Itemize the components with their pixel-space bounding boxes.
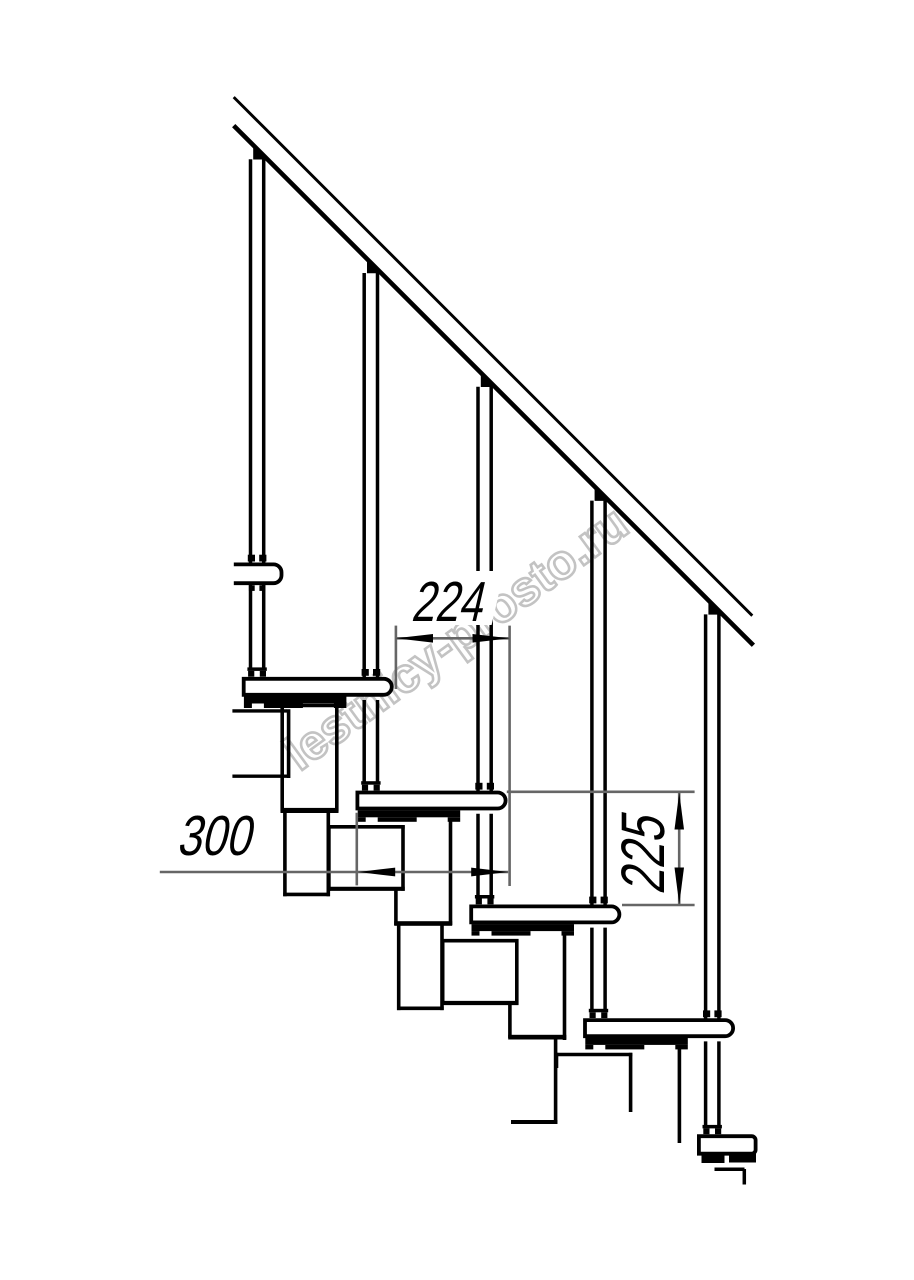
svg-text:225: 225 xyxy=(608,805,677,898)
svg-text:224: 224 xyxy=(408,570,493,633)
svg-text:300: 300 xyxy=(173,803,261,867)
